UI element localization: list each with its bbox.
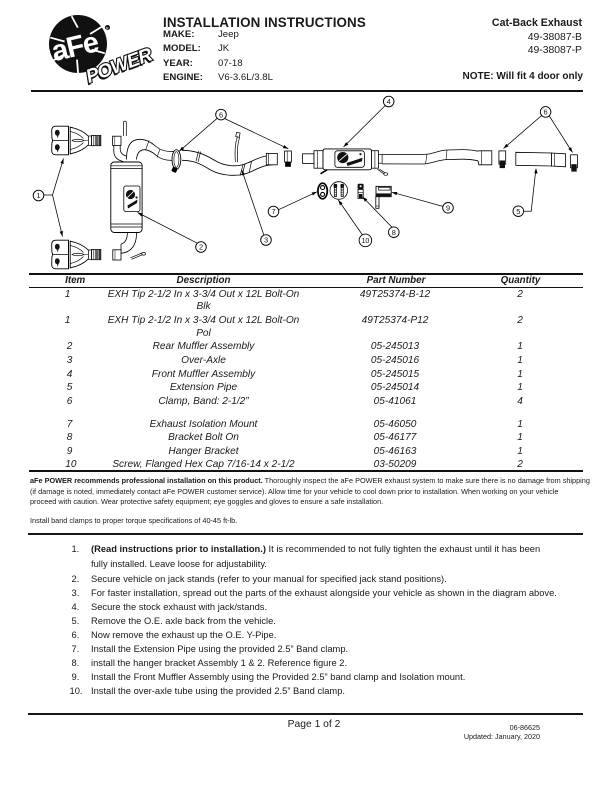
svg-text:2: 2 <box>199 243 203 252</box>
svg-text:3: 3 <box>264 236 268 245</box>
svg-text:8: 8 <box>392 228 396 237</box>
svg-text:R: R <box>106 26 109 30</box>
svg-text:6: 6 <box>219 110 223 119</box>
svg-text:5: 5 <box>516 207 520 216</box>
svg-text:1: 1 <box>36 191 40 200</box>
svg-text:9: 9 <box>446 203 450 212</box>
svg-text:10: 10 <box>362 238 370 245</box>
svg-text:6: 6 <box>544 108 548 117</box>
svg-text:4: 4 <box>387 97 391 106</box>
svg-text:7: 7 <box>271 207 275 216</box>
